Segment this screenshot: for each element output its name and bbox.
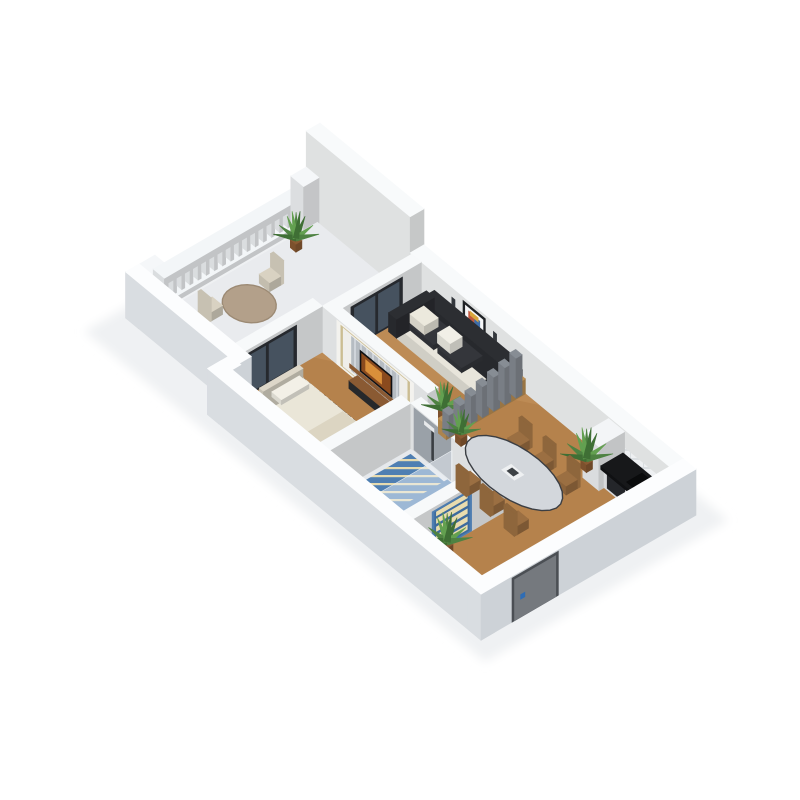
dining-chair-4 <box>466 472 469 497</box>
floor-plan-screenshot <box>0 0 800 800</box>
dining-chair-6 <box>514 512 517 537</box>
partition-slats <box>516 355 522 399</box>
dining-chair-2 <box>553 444 556 469</box>
partition-slats <box>510 353 516 398</box>
shower-riser <box>432 427 434 461</box>
partition-slats <box>476 381 482 417</box>
dining-chair-3 <box>577 464 580 489</box>
floor-plan-3d-render <box>0 0 800 800</box>
dining-chair-1 <box>529 424 532 449</box>
balcony-chair-2 <box>281 260 284 285</box>
balcony-chair-1 <box>208 298 211 323</box>
dining-chair-5 <box>490 492 493 517</box>
partition-slats <box>499 362 505 404</box>
partition-slats <box>487 372 493 411</box>
